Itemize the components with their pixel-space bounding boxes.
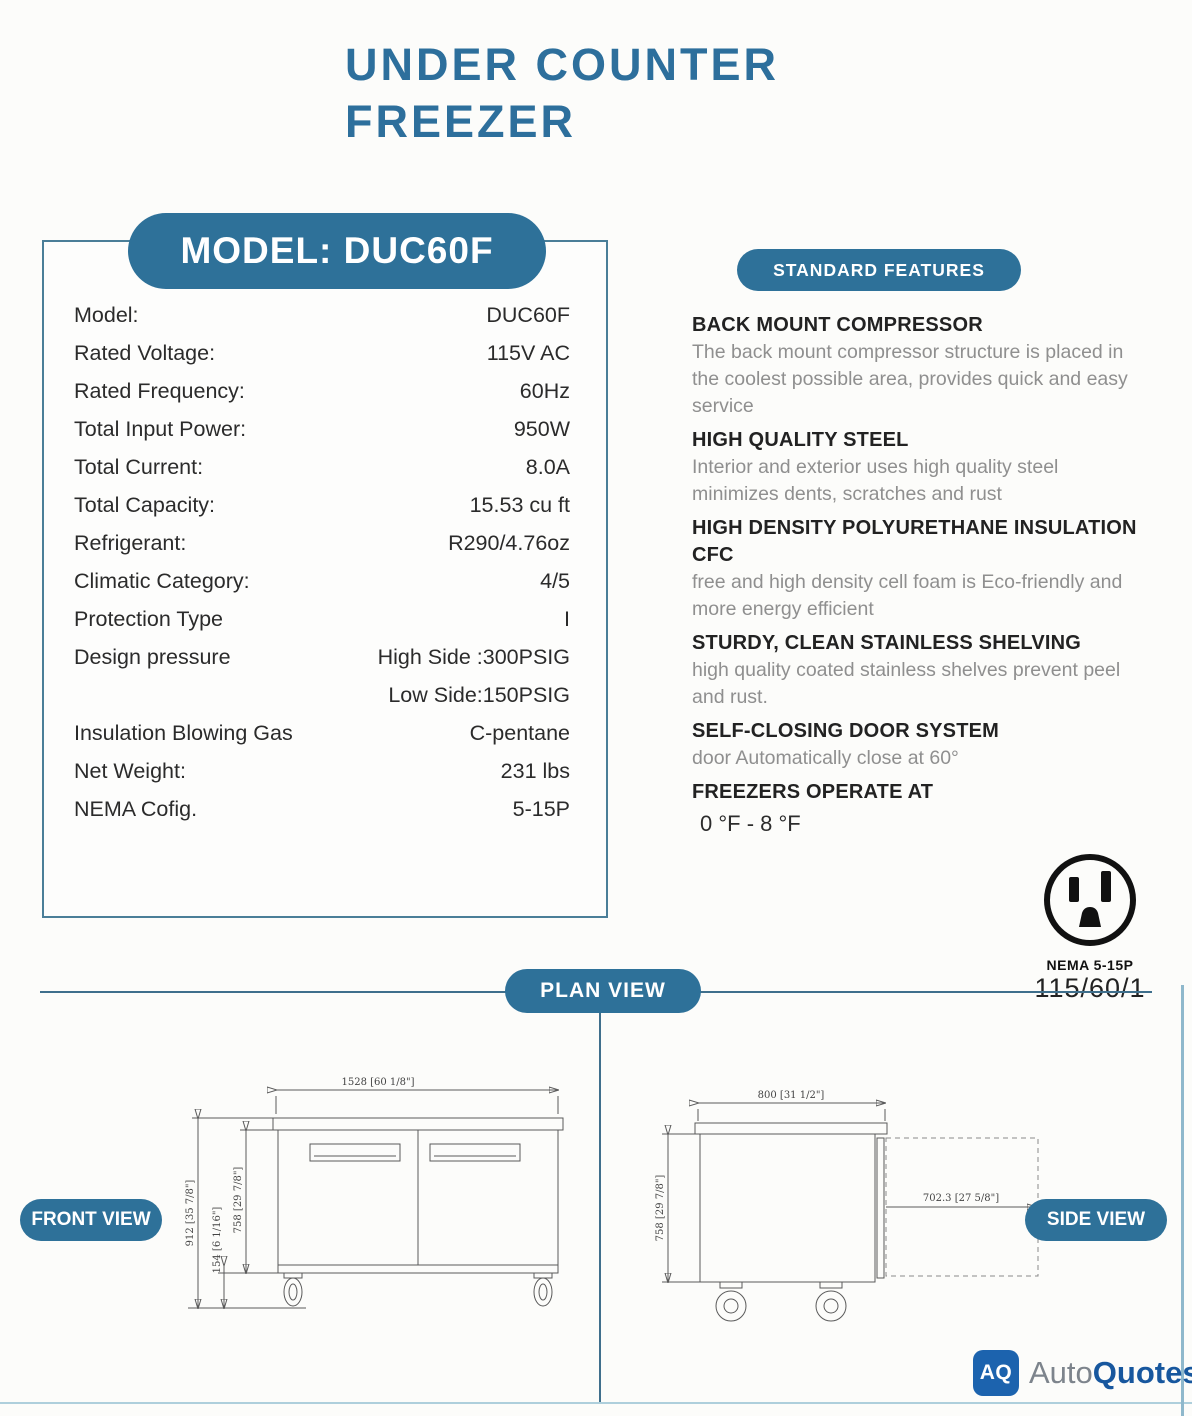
spec-row: Climatic Category:4/5 — [74, 562, 570, 600]
spec-label: Model: — [74, 296, 139, 334]
side-door-swing-dim: 702.3 [27 5/8"] — [923, 1193, 999, 1204]
spec-value: High Side :300PSIG — [378, 638, 570, 676]
spec-rows: Model:DUC60F Rated Voltage:115V AC Rated… — [44, 242, 606, 828]
feature-heading: HIGH QUALITY STEEL — [692, 427, 1142, 454]
spec-label: NEMA Cofig. — [74, 790, 197, 828]
spec-label: Net Weight: — [74, 752, 186, 790]
spec-value: 950W — [514, 410, 570, 448]
spec-value: 4/5 — [540, 562, 570, 600]
spec-label: Rated Voltage: — [74, 334, 215, 372]
bottom-rule — [0, 1402, 1192, 1404]
autoquotes-logo-icon: AQ — [973, 1350, 1019, 1396]
spec-label: Protection Type — [74, 600, 223, 638]
side-view-pill: SIDE VIEW — [1025, 1199, 1167, 1241]
spec-value: Low Side:150PSIG — [388, 676, 570, 714]
spec-label: Insulation Blowing Gas — [74, 714, 293, 752]
spec-label: Climatic Category: — [74, 562, 250, 600]
nema-plug-icon — [1038, 850, 1142, 950]
spec-row: Total Capacity:15.53 cu ft — [74, 486, 570, 524]
front-caster-dim: 154 [6 1/16"] — [212, 1207, 223, 1274]
feature-heading: STURDY, CLEAN STAINLESS SHELVING — [692, 630, 1142, 657]
spec-value: DUC60F — [486, 296, 570, 334]
spec-row: Net Weight:231 lbs — [74, 752, 570, 790]
feature-heading: FREEZERS OPERATE AT — [692, 779, 1142, 806]
front-door-dim: 758 [29 7/8"] — [233, 1167, 244, 1234]
page-title: UNDER COUNTER FREEZER — [345, 36, 779, 150]
spec-row: Rated Frequency:60Hz — [74, 372, 570, 410]
feature-body: door Automatically close at 60° — [692, 745, 1142, 772]
feature-item: HIGH QUALITY STEEL Interior and exterior… — [692, 427, 1142, 508]
spec-value: 231 lbs — [501, 752, 570, 790]
feature-body: 0 °F - 8 °F — [692, 806, 1142, 837]
autoquotes-logo: AQ AutoQuotes — [973, 1350, 1192, 1396]
front-view-pill: FRONT VIEW — [20, 1199, 162, 1241]
spec-row: Refrigerant:R290/4.76oz — [74, 524, 570, 562]
spec-value: R290/4.76oz — [448, 524, 570, 562]
feature-heading: HIGH DENSITY POLYURETHANE INSULATION CFC — [692, 515, 1142, 569]
model-pill: MODEL: DUC60F — [128, 213, 546, 289]
page-title-line2: FREEZER — [345, 93, 779, 150]
spec-row: Protection TypeI — [74, 600, 570, 638]
feature-body: Interior and exterior uses high quality … — [692, 454, 1142, 508]
spec-value: 8.0A — [526, 448, 570, 486]
spec-label: Total Capacity: — [74, 486, 215, 524]
standard-features-pill: STANDARD FEATURES — [737, 249, 1021, 291]
side-depth-dim: 800 [31 1/2"] — [758, 1090, 825, 1101]
spec-label: Total Input Power: — [74, 410, 246, 448]
feature-heading: BACK MOUNT COMPRESSOR — [692, 312, 1142, 339]
spec-row: Low Side:150PSIG — [74, 676, 570, 714]
front-width-dim: 1528 [60 1/8"] — [341, 1077, 414, 1088]
features-list: BACK MOUNT COMPRESSOR The back mount com… — [692, 312, 1142, 844]
logo-text-quotes: Quotes — [1093, 1355, 1192, 1390]
logo-text-auto: Auto — [1029, 1355, 1093, 1390]
spec-row: Rated Voltage:115V AC — [74, 334, 570, 372]
spec-label: Design pressure — [74, 638, 231, 676]
spec-value: I — [564, 600, 570, 638]
feature-body: The back mount compressor structure is p… — [692, 339, 1142, 420]
spec-table: Model:DUC60F Rated Voltage:115V AC Rated… — [42, 240, 608, 918]
page-title-line1: UNDER COUNTER — [345, 36, 779, 93]
feature-item: FREEZERS OPERATE AT 0 °F - 8 °F — [692, 779, 1142, 837]
plan-view-pill: PLAN VIEW — [505, 969, 701, 1013]
nema-label: NEMA 5-15P — [1034, 957, 1146, 973]
spec-value: 5-15P — [513, 790, 570, 828]
nema-plug-block: NEMA 5-15P 115/60/1 — [1034, 850, 1146, 1004]
nema-power-rating: 115/60/1 — [1034, 973, 1146, 1004]
feature-heading: SELF-CLOSING DOOR SYSTEM — [692, 718, 1142, 745]
view-separator-line — [599, 1013, 601, 1402]
spec-row: NEMA Cofig.5-15P — [74, 790, 570, 828]
spec-label: Rated Frequency: — [74, 372, 245, 410]
spec-value: C-pentane — [470, 714, 570, 752]
feature-body: free and high density cell foam is Eco-f… — [692, 569, 1142, 623]
spec-sheet: UNDER COUNTER FREEZER MODEL: DUC60F Mode… — [0, 0, 1192, 1416]
spec-label: Refrigerant: — [74, 524, 186, 562]
front-height-dim: 912 [35 7/8"] — [185, 1180, 196, 1247]
feature-item: HIGH DENSITY POLYURETHANE INSULATION CFC… — [692, 515, 1142, 623]
spec-value: 15.53 cu ft — [470, 486, 570, 524]
feature-item: BACK MOUNT COMPRESSOR The back mount com… — [692, 312, 1142, 420]
spec-value: 115V AC — [487, 334, 570, 372]
autoquotes-logo-text: AutoQuotes — [1029, 1355, 1192, 1391]
side-view-drawing: 800 [31 1/2"] 702.3 [27 5/8"] 758 [29 7/… — [640, 1085, 1060, 1335]
spec-row: Total Input Power:950W — [74, 410, 570, 448]
spec-row: Total Current:8.0A — [74, 448, 570, 486]
feature-item: STURDY, CLEAN STAINLESS SHELVING high qu… — [692, 630, 1142, 711]
side-height-dim: 758 [29 7/8"] — [655, 1175, 666, 1242]
spec-row: Design pressureHigh Side :300PSIG — [74, 638, 570, 676]
feature-body: high quality coated stainless shelves pr… — [692, 657, 1142, 711]
front-view-drawing: 1528 [60 1/8"] 912 [35 7/8"] 154 [6 1/16… — [178, 1070, 578, 1320]
spec-label: Total Current: — [74, 448, 203, 486]
spec-row: Model:DUC60F — [74, 296, 570, 334]
spec-row: Insulation Blowing GasC-pentane — [74, 714, 570, 752]
feature-item: SELF-CLOSING DOOR SYSTEM door Automatica… — [692, 718, 1142, 772]
spec-value: 60Hz — [520, 372, 570, 410]
